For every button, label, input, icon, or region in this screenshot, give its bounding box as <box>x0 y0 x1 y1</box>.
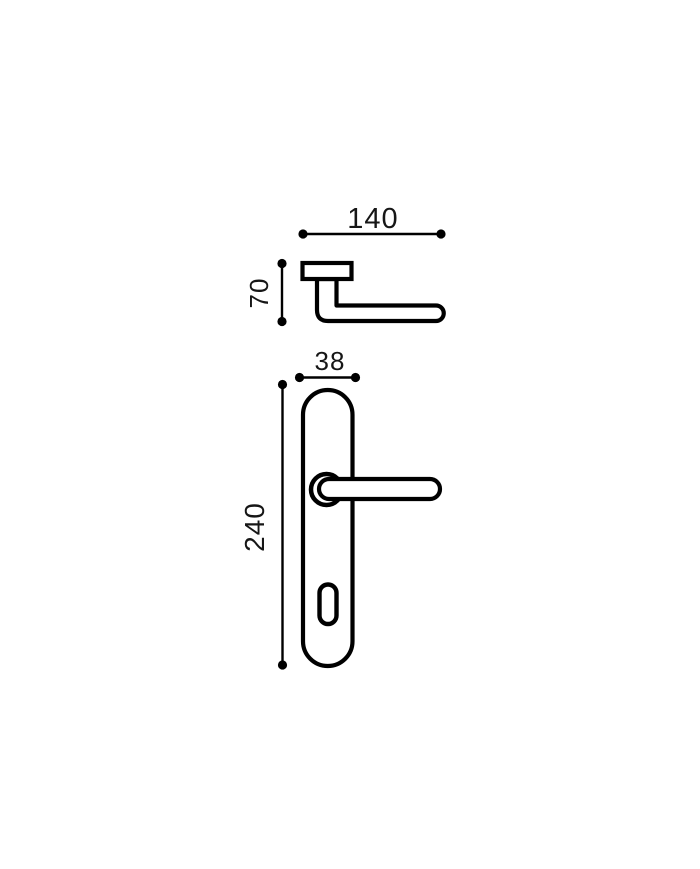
dimension-handle-length: 140 <box>298 203 445 239</box>
technical-drawing: 140 70 38 <box>0 0 700 869</box>
dimension-label-140: 140 <box>347 203 398 235</box>
dimension-dot-140-left <box>298 229 307 238</box>
dimension-dot-240-top <box>278 380 287 389</box>
handle-body-outline <box>317 279 444 321</box>
dimension-label-240: 240 <box>239 502 270 552</box>
dimension-plate-width: 38 <box>295 346 360 382</box>
keyhole <box>320 585 337 625</box>
dimension-label-70: 70 <box>244 278 274 309</box>
handle-side-view <box>303 263 444 321</box>
dimension-label-38: 38 <box>315 346 346 376</box>
rose-mount-outline <box>303 263 352 279</box>
dimension-dot-38-left <box>295 373 304 382</box>
dimension-dot-240-bottom <box>278 660 287 669</box>
dimension-plate-height: 240 <box>239 380 287 670</box>
dimension-dot-70-top <box>277 259 286 268</box>
drawing-canvas: 140 70 38 <box>0 0 700 869</box>
dimension-dot-70-bottom <box>277 317 286 326</box>
dimension-handle-height: 70 <box>244 259 287 326</box>
dimension-dot-38-right <box>351 373 360 382</box>
dimension-dot-140-right <box>436 229 445 238</box>
lever-outline <box>319 479 440 499</box>
handle-front-view <box>303 390 440 666</box>
